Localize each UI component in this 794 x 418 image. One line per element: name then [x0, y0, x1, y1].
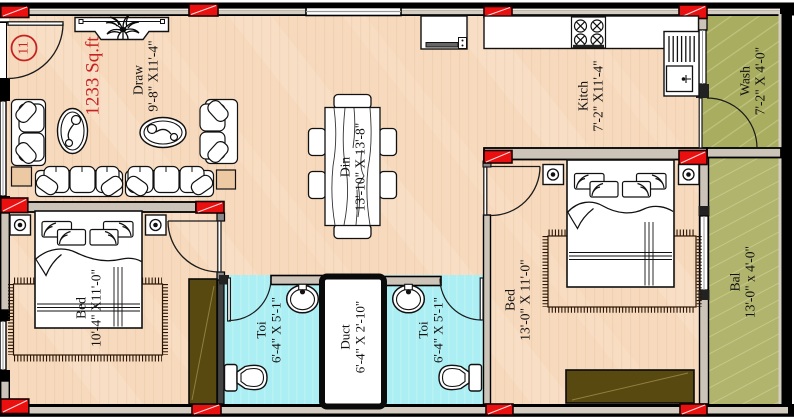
svg-text:6'-4" X 5'-1": 6'-4" X 5'-1"	[431, 297, 446, 363]
svg-text:1233 Sq.ft: 1233 Sq.ft	[83, 36, 104, 116]
svg-text:Toi: Toi	[416, 321, 431, 339]
svg-text:10'-4" X11'-0": 10'-4" X11'-0"	[89, 269, 104, 347]
svg-text:Bal: Bal	[728, 272, 743, 291]
svg-text:Draw: Draw	[131, 65, 146, 95]
svg-text:7'-2" X 4'-0": 7'-2" X 4'-0"	[753, 47, 768, 115]
svg-text:Wash: Wash	[738, 66, 753, 96]
svg-text:13'-0" x 4'-0": 13'-0" x 4'-0"	[743, 246, 758, 318]
svg-text:Kitch: Kitch	[576, 81, 591, 111]
svg-text:Toi: Toi	[254, 321, 269, 339]
svg-text:13'-0" X 11'-0": 13'-0" X 11'-0"	[518, 259, 533, 340]
svg-text:7'-2" X11'-4": 7'-2" X11'-4"	[591, 60, 606, 131]
svg-text:9'-8" X11'-4": 9'-8" X11'-4"	[146, 40, 161, 111]
svg-text:13'-10" X 13'-8": 13'-10" X 13'-8"	[353, 123, 368, 212]
svg-text:6'-4" X 2'-10": 6'-4" X 2'-10"	[353, 301, 368, 373]
svg-text:Din: Din	[338, 157, 353, 178]
svg-text:6'-4" X 5'-1": 6'-4" X 5'-1"	[269, 297, 284, 363]
svg-text:11: 11	[17, 41, 32, 54]
svg-text:Bed: Bed	[503, 289, 518, 311]
svg-text:Bed: Bed	[74, 297, 89, 319]
svg-text:Duct: Duct	[338, 324, 353, 350]
